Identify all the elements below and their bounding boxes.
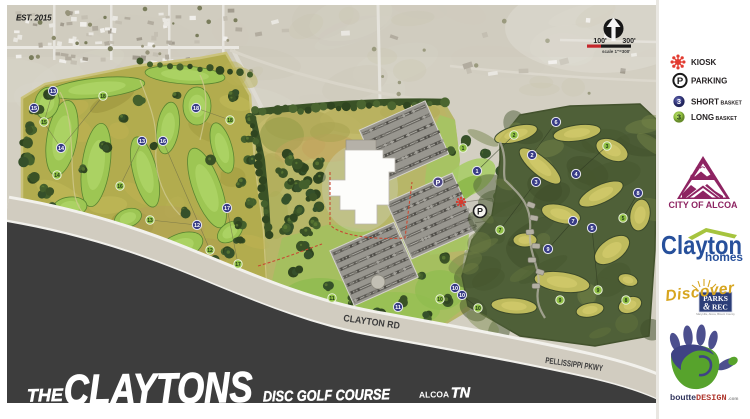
svg-text:10: 10 — [459, 293, 465, 299]
svg-text:16: 16 — [160, 139, 166, 145]
svg-text:11: 11 — [329, 296, 335, 302]
svg-text:3: 3 — [677, 97, 681, 106]
svg-text:2: 2 — [513, 133, 516, 139]
svg-text:15: 15 — [31, 106, 37, 112]
svg-text:6: 6 — [554, 120, 557, 126]
svg-text:14: 14 — [54, 173, 60, 179]
svg-text:THE: THE — [27, 385, 64, 406]
svg-text:5: 5 — [622, 216, 625, 222]
svg-text:18: 18 — [100, 94, 106, 100]
svg-text:homes: homes — [705, 252, 743, 264]
svg-text:9: 9 — [546, 247, 549, 253]
svg-text:3: 3 — [606, 144, 609, 150]
svg-text:18: 18 — [227, 118, 233, 124]
svg-text:18: 18 — [193, 106, 199, 112]
svg-text:13: 13 — [139, 139, 145, 145]
svg-text:2: 2 — [530, 153, 533, 159]
svg-text:DISC GOLF COURSE: DISC GOLF COURSE — [263, 386, 391, 405]
svg-text:16: 16 — [117, 184, 123, 190]
svg-text:8: 8 — [636, 191, 639, 197]
svg-text:ALCOA: ALCOA — [419, 389, 449, 400]
svg-text:17: 17 — [224, 206, 230, 212]
svg-text:10: 10 — [437, 297, 443, 303]
svg-text:12: 12 — [194, 223, 200, 229]
svg-text:17: 17 — [235, 262, 241, 268]
svg-text:3: 3 — [677, 113, 681, 122]
svg-text:7: 7 — [571, 219, 574, 225]
svg-text:100': 100' — [593, 38, 607, 45]
svg-text:10: 10 — [475, 306, 481, 312]
svg-text:11: 11 — [395, 305, 401, 311]
svg-text:TN: TN — [451, 385, 471, 401]
svg-text:14: 14 — [58, 146, 65, 152]
svg-text:scale 1"=300': scale 1"=300' — [602, 49, 630, 54]
svg-text:7: 7 — [499, 228, 502, 234]
svg-text:P: P — [436, 180, 441, 187]
svg-text:300': 300' — [622, 38, 636, 45]
svg-text:1: 1 — [462, 146, 465, 152]
svg-text:P: P — [477, 207, 483, 217]
svg-text:5: 5 — [590, 226, 593, 232]
svg-text:13: 13 — [147, 218, 153, 224]
svg-text:3: 3 — [534, 180, 537, 186]
svg-text:10: 10 — [452, 286, 458, 292]
svg-text:CITY OF ALCOA: CITY OF ALCOA — [669, 200, 738, 210]
svg-text:EST. 2015: EST. 2015 — [16, 14, 52, 23]
svg-text:9: 9 — [559, 298, 562, 304]
svg-text:12: 12 — [207, 248, 213, 254]
svg-text:Maryville, Alcoa, Blount Count: Maryville, Alcoa, Blount County — [696, 312, 735, 316]
svg-text:1: 1 — [475, 169, 478, 175]
svg-text:PARKING: PARKING — [691, 77, 727, 86]
svg-text:P: P — [677, 76, 684, 87]
svg-text:8: 8 — [625, 298, 628, 304]
svg-text:13: 13 — [50, 89, 56, 95]
svg-text:9: 9 — [597, 288, 600, 294]
svg-text:15: 15 — [41, 120, 47, 126]
svg-text:& REC: & REC — [703, 302, 728, 312]
svg-text:KIOSK: KIOSK — [691, 58, 717, 67]
